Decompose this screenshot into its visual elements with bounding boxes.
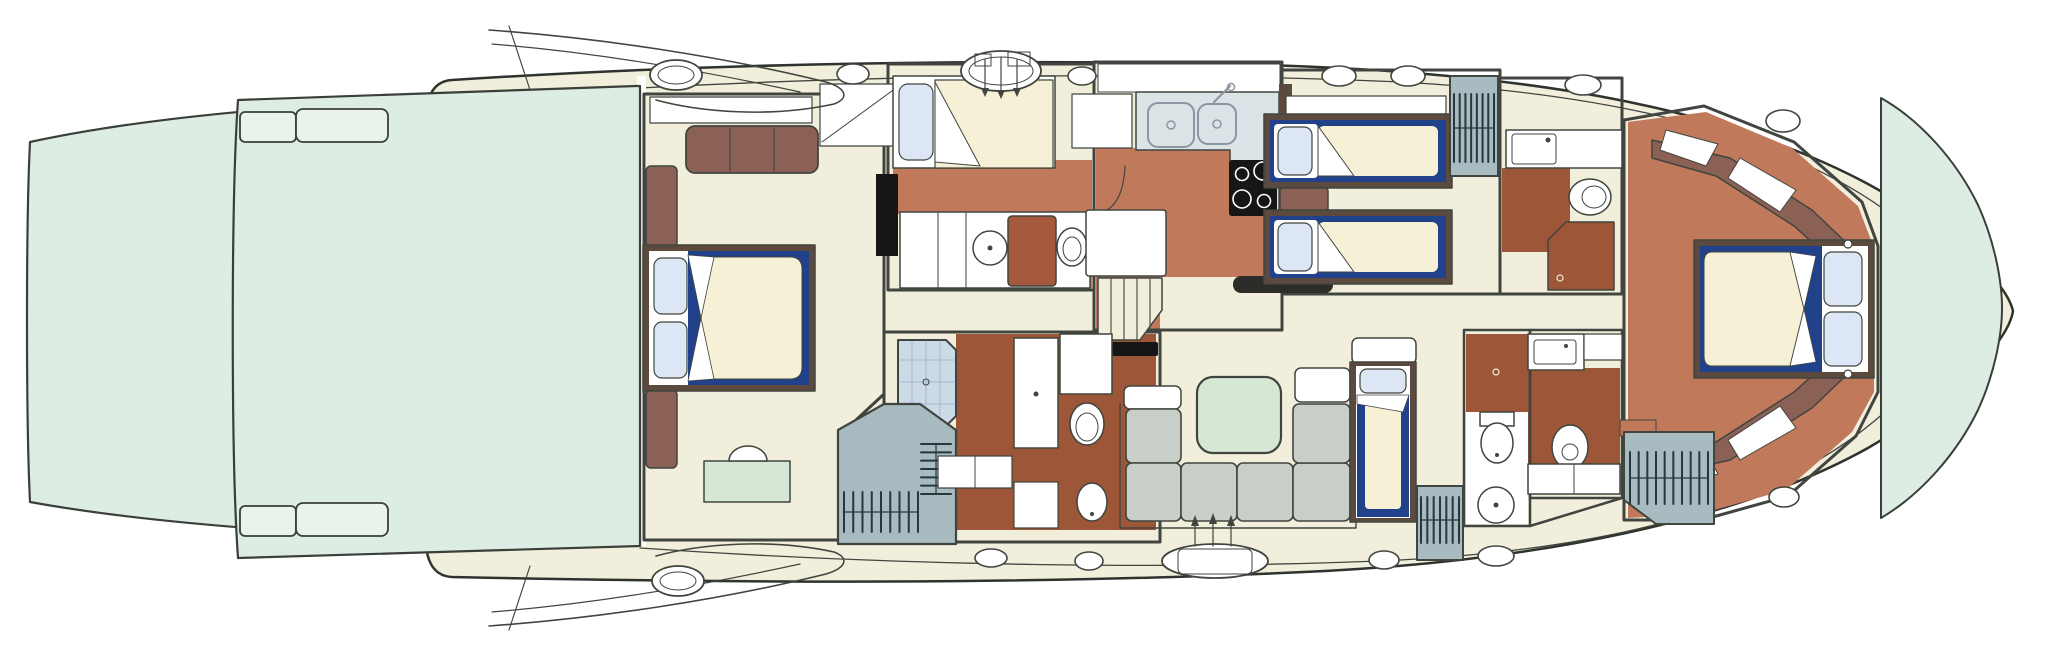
master-bath-toilet xyxy=(1070,403,1104,445)
porthole-top-4 xyxy=(1391,66,1425,86)
single-berth-pillow xyxy=(1360,369,1406,393)
vip-bed-pillow-2 xyxy=(1824,312,1862,366)
salon-seat-cushion-2 xyxy=(1237,463,1293,521)
salon-chaise-cushion-2 xyxy=(1126,463,1181,521)
master-cabinet-top xyxy=(646,166,677,247)
porthole-bottom-4 xyxy=(1478,546,1514,566)
master-bed-pillow-1 xyxy=(654,258,687,314)
porthole-top-3 xyxy=(1322,66,1356,86)
vip-ensuite-sink-drain xyxy=(1564,344,1568,348)
salon-table xyxy=(1197,377,1281,453)
crew-bed-pillow xyxy=(899,84,933,160)
galley-upper-cabinets xyxy=(1098,64,1280,92)
vip-bed-duvet xyxy=(1704,252,1804,366)
galley-island xyxy=(1086,210,1166,276)
flybridge-hatch-top-small xyxy=(240,112,296,142)
crew-shower xyxy=(1008,216,1056,286)
crew-locker-dark xyxy=(876,174,898,256)
salon-seat-cushion-1 xyxy=(1181,463,1237,521)
flybridge-hatch-bottom-small xyxy=(240,506,296,536)
yacht-floor-plan xyxy=(0,0,2048,659)
flybridge-hatch-bottom-large xyxy=(296,503,388,536)
twin-bath-counter xyxy=(1506,130,1622,168)
foredeck-bow xyxy=(1881,98,2002,518)
master-bath-vanity-knob xyxy=(1034,392,1039,397)
single-berth-headboard xyxy=(1352,338,1416,364)
day-head-tray-drain xyxy=(1494,503,1499,508)
salon-seat-cushion-3 xyxy=(1293,463,1350,521)
flybridge-hatch-top-large xyxy=(296,109,388,142)
master-bath-cistern xyxy=(1060,334,1112,394)
master-top-cabinet xyxy=(650,97,812,123)
tv-cabinet xyxy=(1112,342,1158,356)
master-bed-pillow-2 xyxy=(654,322,687,378)
floor-plan-canvas xyxy=(0,0,2048,659)
vip-reading-light-2 xyxy=(1844,370,1852,378)
flybridge-deck xyxy=(233,86,640,558)
crew-sink-drain xyxy=(988,246,993,251)
twin-bath-toilet xyxy=(1569,179,1611,215)
porthole-top-1 xyxy=(837,64,869,84)
salon-corner-cushion xyxy=(1293,404,1350,463)
galley-side-locker xyxy=(1072,94,1132,148)
master-bath-step-2 xyxy=(1014,482,1058,528)
day-head-toilet-dot xyxy=(1495,453,1499,457)
master-cabinet-bottom xyxy=(646,390,677,468)
vip-ensuite-toilet xyxy=(1552,425,1588,469)
porthole-top-2 xyxy=(1068,67,1096,85)
master-sofa xyxy=(686,126,818,173)
crew-toilet xyxy=(1057,228,1087,266)
salon-side-table-right xyxy=(1295,368,1350,402)
master-bed-duvet xyxy=(700,257,802,379)
twin-bed-pillow-upper xyxy=(1278,127,1312,175)
vip-ensuite-counter-2 xyxy=(1584,334,1622,360)
vip-reading-light-1 xyxy=(1844,240,1852,248)
day-head-shower-floor xyxy=(1466,334,1528,412)
master-bath-bidet-drain xyxy=(1090,512,1094,516)
twin-bed-pillow-lower xyxy=(1278,223,1312,271)
vip-bed-pillow-1 xyxy=(1824,252,1862,306)
porthole-top-6 xyxy=(1766,110,1800,132)
single-berth-mattress xyxy=(1365,403,1401,509)
porthole-top-5 xyxy=(1565,75,1601,95)
twin-bath-sink-drain xyxy=(1546,138,1551,143)
salon-chaise-cushion-1 xyxy=(1126,409,1181,463)
twin-wardrobe xyxy=(1450,76,1498,176)
master-vanity-table xyxy=(704,461,790,502)
porthole-bottom-3 xyxy=(1369,551,1399,569)
porthole-bottom-1 xyxy=(975,549,1007,567)
salon-side-table-left xyxy=(1124,386,1181,409)
porthole-bottom-5 xyxy=(1769,487,1799,507)
porthole-bottom-2 xyxy=(1075,552,1103,570)
